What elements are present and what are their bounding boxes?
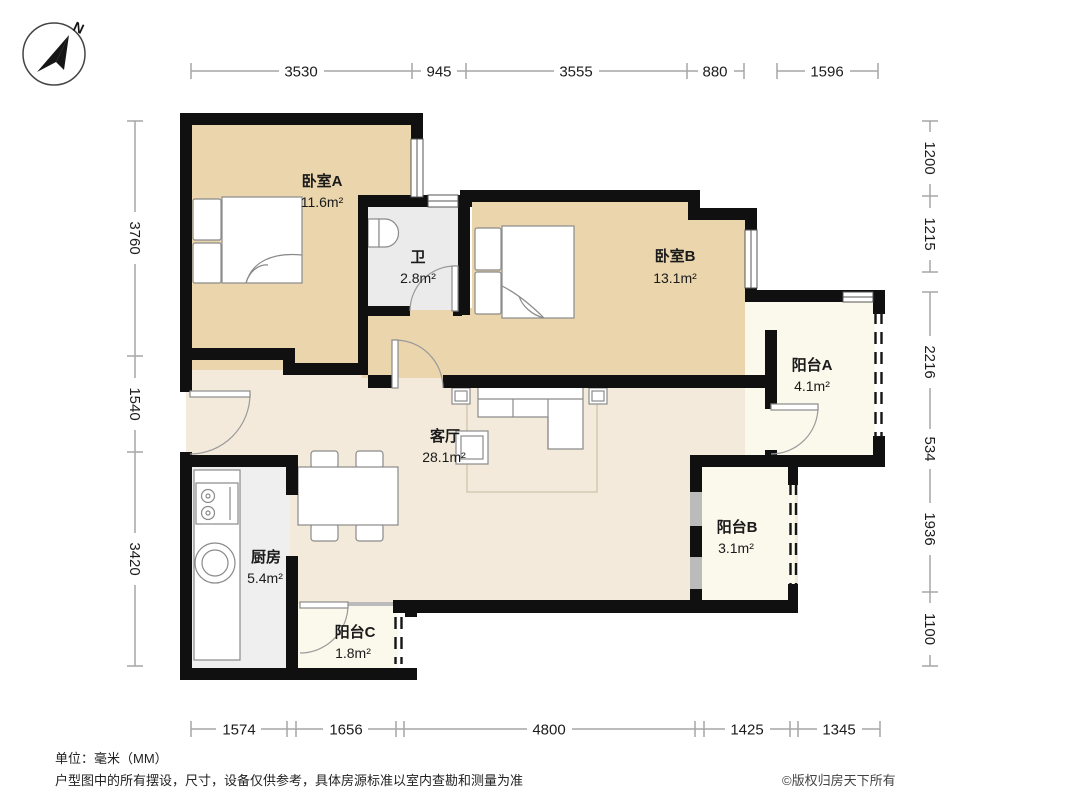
unit-note: 单位：毫米（MM）: [55, 748, 168, 767]
toilet-icon: [368, 219, 399, 247]
hallway-fill: [362, 308, 472, 378]
dim-right-3: 2216: [921, 345, 938, 378]
room-label-balcony-b: 阳台B: [717, 518, 758, 536]
dim-bottom-1: 1574: [222, 721, 255, 738]
dim-left-2: 1540: [126, 387, 143, 420]
bed-a-icon: [193, 197, 302, 283]
room-area-balcony-b: 3.1m²: [718, 540, 754, 556]
dim-right-6: 1100: [921, 613, 938, 645]
room-label-balcony-c: 阳台C: [335, 623, 376, 641]
compass-north-label: N: [71, 18, 87, 37]
balcony-c-sill: [348, 602, 393, 606]
floor-plan-page: { "compass": { "north_label": "N" }, "ro…: [0, 0, 1066, 800]
copyright: ©版权归房天下所有: [782, 770, 896, 789]
compass-icon: N: [23, 18, 87, 85]
dim-top-5: 1596: [810, 63, 843, 80]
kitchen-counter-icon: [194, 470, 240, 660]
dim-right-5: 1936: [921, 512, 938, 545]
dim-right-4: 534: [921, 436, 938, 461]
room-area-balcony-c: 1.8m²: [335, 645, 371, 661]
dim-bottom-2: 1656: [329, 721, 362, 738]
dim-bottom-3: 4800: [532, 721, 565, 738]
dim-left-3: 3420: [126, 542, 143, 575]
dim-top-2: 945: [426, 63, 451, 80]
dim-right-2: 1215: [921, 217, 938, 250]
room-label-bedroom-b: 卧室B: [655, 247, 696, 265]
dim-right-1: 1200: [921, 141, 938, 174]
dim-bottom-4: 1425: [730, 721, 763, 738]
room-area-kitchen: 5.4m²: [247, 570, 283, 586]
room-label-bathroom: 卫: [410, 249, 425, 266]
dim-bottom-5: 1345: [822, 721, 855, 738]
dim-left-1: 3760: [126, 221, 143, 254]
room-area-bedroom-b: 13.1m²: [653, 270, 697, 286]
dimension-left: 3760 1540 3420: [126, 121, 143, 666]
dim-top-1: 3530: [284, 63, 317, 80]
room-label-balcony-a: 阳台A: [792, 356, 833, 374]
room-label-kitchen: 厨房: [251, 548, 281, 566]
disclaimer: 户型图中的所有摆设，尺寸，设备仅供参考，具体房源标准以室内查勘和测量为准: [55, 770, 523, 789]
room-label-living: 客厅: [429, 427, 460, 445]
dimension-top: 3530 945 3555 880 1596: [191, 63, 878, 80]
room-area-bedroom-a: 11.6m²: [301, 194, 344, 210]
room-label-bedroom-a: 卧室A: [302, 172, 343, 190]
room-area-balcony-a: 4.1m²: [794, 378, 830, 394]
room-area-bathroom: 2.8m²: [400, 270, 436, 286]
floor-plan-canvas: 卧室A 11.6m² 卫 2.8m² 卧室B 13.1m² 阳台A 4.1m² …: [0, 0, 1066, 800]
dimension-bottom: 1574 1656 4800 1425 1345: [191, 721, 880, 738]
dimension-right: 1200 1215 2216 534 1936 1100: [921, 121, 938, 666]
bed-b-icon: [475, 226, 574, 318]
dim-top-3: 3555: [559, 63, 592, 80]
room-area-living: 28.1m²: [422, 449, 466, 465]
dim-top-4: 880: [702, 63, 727, 80]
stove-icon: [196, 483, 238, 524]
